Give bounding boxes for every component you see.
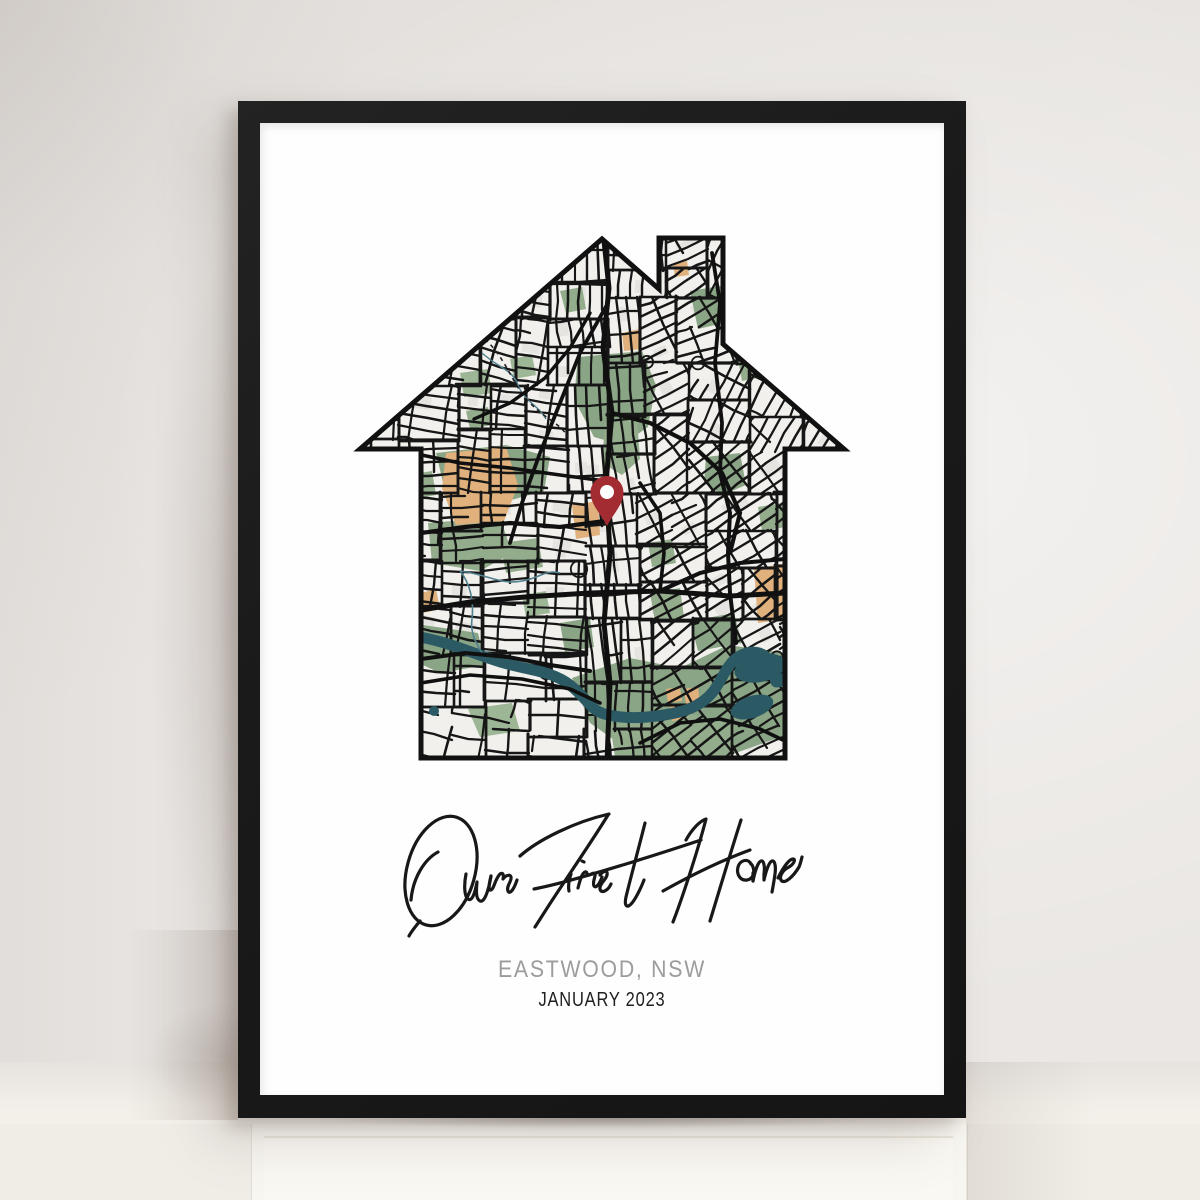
svg-text:JANUARY 2023: JANUARY 2023 xyxy=(539,988,666,1011)
svg-text:EASTWOOD, NSW: EASTWOOD, NSW xyxy=(498,956,706,983)
